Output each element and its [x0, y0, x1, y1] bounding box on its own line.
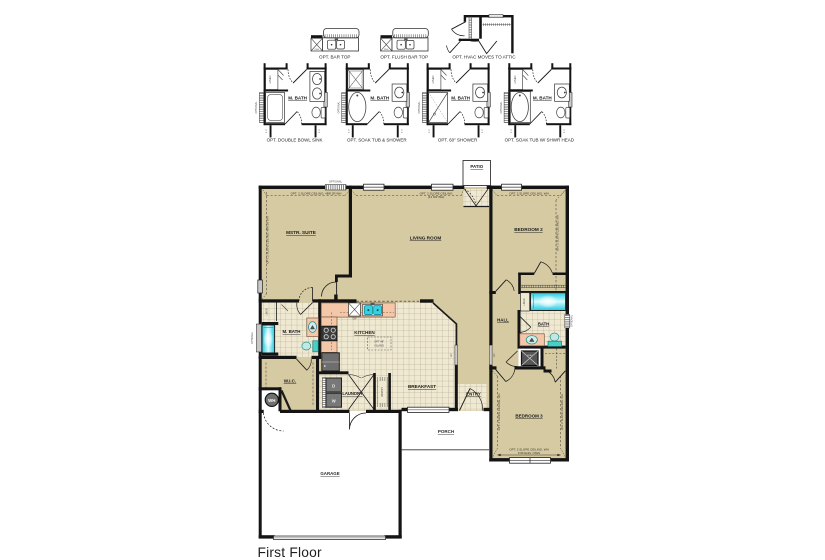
svg-text:3'-0": 3'-0" — [564, 129, 566, 134]
svg-text:KITCHEN: KITCHEN — [354, 330, 375, 335]
svg-text:W.I.C.: W.I.C. — [284, 379, 297, 384]
svg-text:3'-0": 3'-0" — [319, 129, 321, 134]
svg-text:OPT. SOAK TUB W/ SHWR HEAD: OPT. SOAK TUB W/ SHWR HEAD — [505, 138, 575, 143]
svg-text:M. BATH: M. BATH — [533, 96, 552, 101]
svg-text:LINEN: LINEN — [268, 76, 272, 84]
svg-text:OPTIONAL: OPTIONAL — [251, 331, 254, 344]
svg-text:OPT. 2 SLOPE CEILING, WH: OPT. 2 SLOPE CEILING, WH — [497, 394, 501, 431]
svg-text:OPT. SOAK TUB & SHOWER: OPT. SOAK TUB & SHOWER — [347, 138, 407, 143]
svg-text:ISLAND: ISLAND — [375, 344, 384, 348]
svg-text:OPTIONAL: OPTIONAL — [418, 101, 421, 114]
svg-text:OPT. DOUBLE BOWL SINK: OPT. DOUBLE BOWL SINK — [267, 138, 323, 143]
svg-text:WH: WH — [268, 398, 275, 403]
svg-text:OPT. 2 SLOPE CEILING, 4BR 2R W: OPT. 2 SLOPE CEILING, 4BR 2R WH — [291, 191, 342, 195]
svg-text:M. BATH: M. BATH — [283, 329, 301, 334]
svg-text:M. BATH: M. BATH — [451, 96, 470, 101]
svg-text:3'-0": 3'-0" — [401, 129, 403, 134]
svg-text:OPT: OPT — [451, 352, 453, 357]
svg-text:BEDROOM 3: BEDROOM 3 — [515, 414, 543, 419]
svg-text:PANTRY: PANTRY — [381, 387, 384, 397]
svg-text:WH. 2 SLOPE CEILING, WH: WH. 2 SLOPE CEILING, WH — [560, 394, 564, 430]
svg-text:LINEN: LINEN — [523, 298, 526, 305]
svg-text:OPTIONAL: OPTIONAL — [337, 101, 340, 114]
svg-text:OPT. 2 SLOPE CEILING, WH: OPT. 2 SLOPE CEILING, WH — [509, 191, 549, 195]
svg-text:HVAC: HVAC — [527, 354, 533, 357]
svg-text:BREAKFAST: BREAKFAST — [408, 384, 436, 389]
svg-text:M. BATH: M. BATH — [288, 96, 307, 101]
svg-text:W: W — [332, 399, 336, 404]
svg-text:D: D — [332, 384, 335, 389]
svg-text:LINEN: LINEN — [513, 76, 517, 84]
svg-text:WH. 2 SLOPE CEILING, WH: WH. 2 SLOPE CEILING, WH — [556, 215, 560, 251]
svg-text:OPTIONAL: OPTIONAL — [255, 101, 258, 114]
svg-text:OPT 48": OPT 48" — [374, 340, 384, 344]
svg-text:First Floor: First Floor — [258, 545, 322, 560]
svg-text:LAUNDRY: LAUNDRY — [342, 391, 363, 396]
svg-text:OPTIONAL: OPTIONAL — [571, 314, 574, 327]
svg-text:3'-0": 3'-0" — [348, 129, 350, 134]
svg-text:M. BATH: M. BATH — [370, 96, 389, 101]
svg-text:3'-0": 3'-0" — [266, 129, 268, 134]
svg-text:3'-0": 3'-0" — [482, 129, 484, 134]
svg-text:RNG: RNG — [384, 49, 389, 51]
svg-text:MSTR. SUITE: MSTR. SUITE — [286, 230, 316, 235]
svg-text:FOR ELEV. OXEN: FOR ELEV. OXEN — [518, 451, 540, 455]
svg-text:RNG: RNG — [315, 49, 320, 51]
svg-text:OPT: OPT — [494, 352, 496, 357]
svg-text:3'-0": 3'-0" — [429, 129, 431, 134]
svg-text:(14 OR WH): (14 OR WH) — [428, 195, 445, 199]
svg-text:LIVING ROOM: LIVING ROOM — [410, 236, 442, 241]
svg-text:ENTRY: ENTRY — [466, 392, 481, 397]
svg-text:PORCH: PORCH — [438, 429, 454, 434]
svg-text:OPTIONAL: OPTIONAL — [500, 101, 503, 114]
svg-text:OPT. BAR TOP: OPT. BAR TOP — [319, 55, 351, 60]
svg-text:OPTIONAL: OPTIONAL — [329, 179, 343, 183]
svg-text:OPT. 2 SLOPE CEILING, WH: OPT. 2 SLOPE CEILING, WH — [509, 448, 549, 452]
svg-text:GARAGE: GARAGE — [320, 471, 339, 476]
svg-text:HALL: HALL — [497, 318, 509, 323]
svg-text:OPT. 60" SHOWER: OPT. 60" SHOWER — [438, 138, 478, 143]
svg-text:LINEN: LINEN — [266, 308, 269, 315]
svg-text:PATIO: PATIO — [470, 164, 483, 169]
svg-text:BEDROOM 2: BEDROOM 2 — [514, 227, 543, 232]
svg-text:3'-0": 3'-0" — [511, 129, 513, 134]
svg-text:OPT. HVAC MOVES TO ATTIC: OPT. HVAC MOVES TO ATTIC — [452, 55, 516, 60]
svg-text:BATH: BATH — [538, 322, 549, 327]
svg-text:OPT. 2 SLOPE CEILING, 4BR 2R W: OPT. 2 SLOPE CEILING, 4BR 2R WH — [266, 216, 270, 263]
svg-text:LINEN: LINEN — [431, 76, 435, 84]
svg-text:OPT. FLUSH BAR TOP: OPT. FLUSH BAR TOP — [380, 55, 428, 60]
